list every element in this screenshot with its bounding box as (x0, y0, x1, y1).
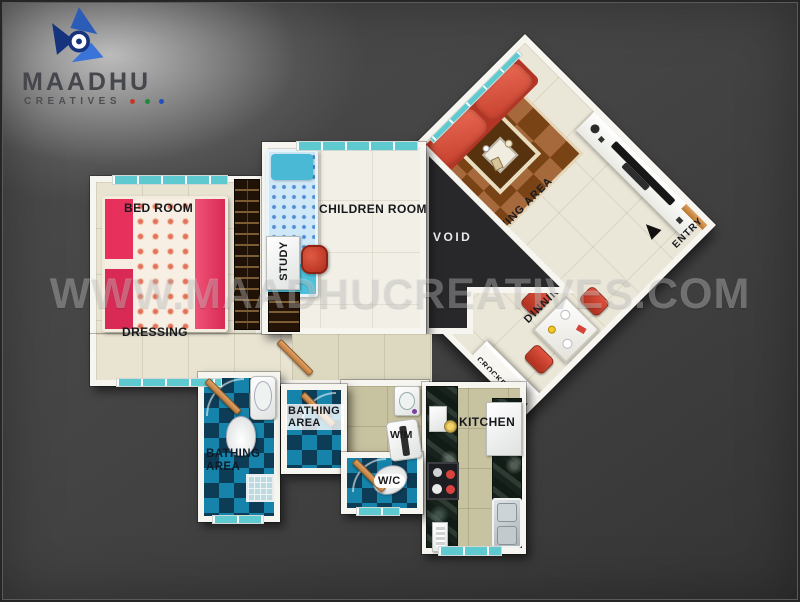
logo-mark-icon (42, 6, 116, 72)
wc-window (356, 507, 400, 516)
study-label: STUDY (278, 226, 290, 296)
wardrobe (234, 179, 260, 330)
burner-icon (432, 484, 442, 494)
wm-label: W/M (390, 430, 413, 442)
kitchen-sink (492, 498, 522, 548)
study-chair (301, 245, 328, 274)
burner-icon (433, 468, 442, 477)
bed-pillows (105, 199, 133, 329)
bedroom-label: BED ROOM (124, 202, 193, 215)
hallway-passage (292, 334, 432, 386)
kitchen-window (438, 546, 502, 556)
kitchen-label: KITCHEN (459, 416, 515, 429)
brand-subtitle: CREATIVES (24, 96, 164, 107)
bath1-window (212, 515, 264, 524)
bathing-area-2-label: BATHING AREA (286, 404, 344, 430)
soap-icon (412, 409, 417, 414)
bathtub (250, 376, 276, 420)
double-bed (102, 196, 228, 332)
sink-basin (497, 503, 517, 522)
brand-dot-blue (159, 99, 164, 104)
brand-subtitle-text: CREATIVES (24, 96, 121, 107)
void-label: VOID (433, 231, 472, 244)
dressing-label: DRESSING (122, 326, 188, 339)
brand-dot-red (130, 99, 135, 104)
children-window (296, 141, 418, 151)
brand-name: MAADHU (22, 68, 151, 97)
bedroom-window (112, 175, 228, 185)
wc-label: W/C (374, 474, 405, 488)
bed-floral-quilt (133, 199, 195, 329)
bathtub-basin (254, 381, 272, 411)
burner-icon (446, 470, 455, 479)
brand-logo: MAADHU CREATIVES (14, 6, 234, 110)
washbasin (394, 386, 420, 416)
bathing-area-1-label: BATHING AREA (206, 448, 268, 473)
brand-dot-green (145, 99, 150, 104)
burner-icon (446, 485, 455, 494)
shower-pan (246, 474, 274, 502)
children-room-label: CHILDREN ROOM (319, 203, 427, 216)
study-cabinet (268, 292, 300, 332)
floor-plan-canvas: LIVING AREA DINNING CROCKERY UNIT ENTRY (0, 0, 800, 602)
washbasin-bowl (399, 392, 415, 410)
sink-basin (497, 526, 517, 545)
cooktop (427, 462, 459, 500)
appliance-grill (436, 527, 445, 547)
bed-blanket (195, 199, 225, 329)
children-bed-pillow (271, 154, 313, 180)
fruit-plate-icon (444, 420, 457, 433)
